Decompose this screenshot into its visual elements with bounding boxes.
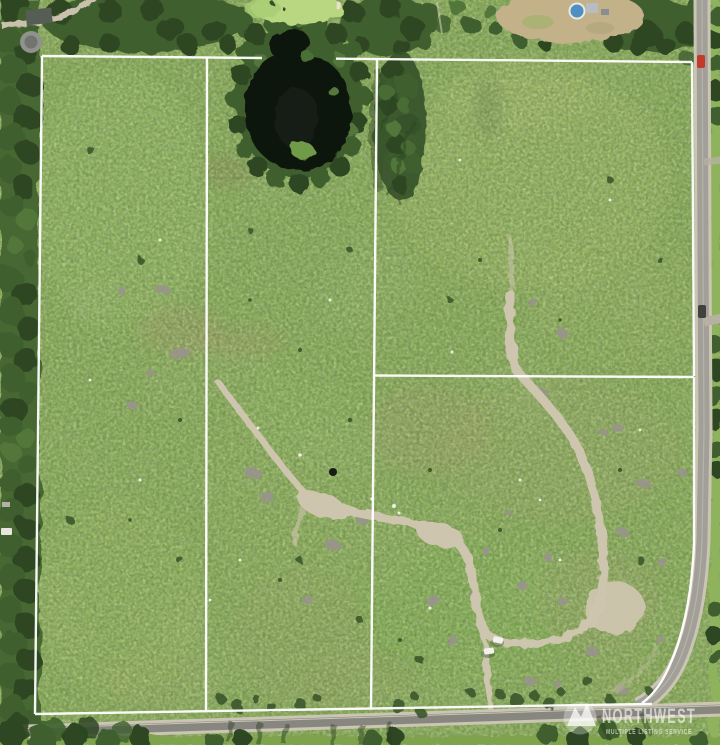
aerial-photo: NORTHWEST MULTIPLE LISTING SERVICE — [0, 0, 720, 745]
barn-roof — [25, 8, 52, 26]
mls-watermark: NORTHWEST MULTIPLE LISTING SERVICE — [564, 702, 697, 737]
red-car — [697, 55, 705, 68]
watermark-tagline: MULTIPLE LISTING SERVICE — [606, 729, 692, 736]
pool-deck — [586, 3, 598, 13]
sand-bunker — [335, 2, 342, 9]
shed — [601, 9, 609, 15]
small-dark-pool — [329, 468, 337, 476]
boundary-interior-line-1 — [206, 58, 207, 712]
watermark-brand: NORTHWEST — [602, 705, 696, 728]
aerial-photograph: NORTHWEST MULTIPLE LISTING SERVICE — [0, 0, 720, 745]
swimming-pool — [570, 4, 585, 19]
boundary-mid-horizontal — [374, 376, 694, 378]
dark-car — [698, 305, 706, 318]
driveway-stub — [704, 318, 720, 322]
parked-rv — [1, 528, 12, 535]
